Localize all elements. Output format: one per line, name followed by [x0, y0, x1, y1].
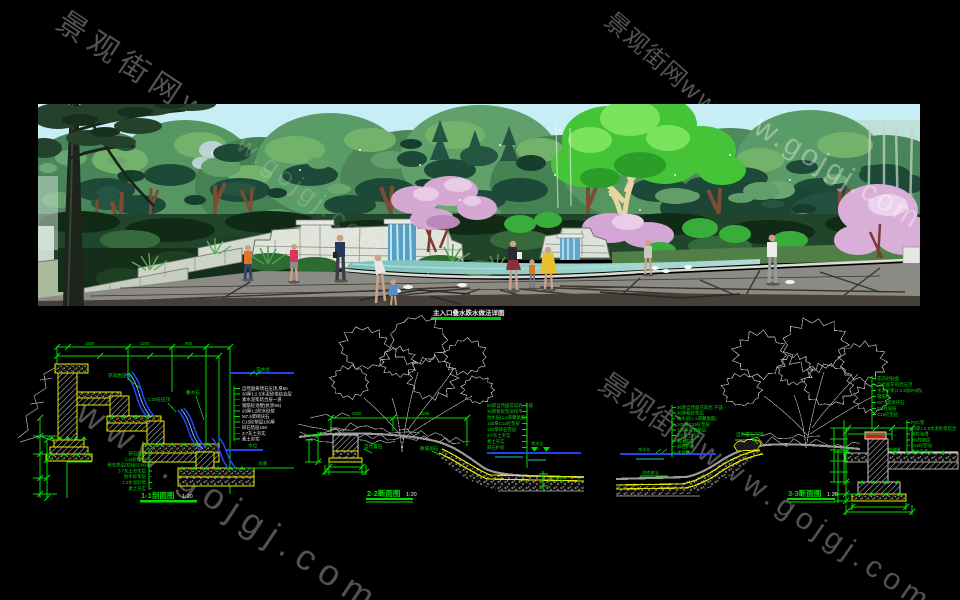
- svg-text:卵石护底: 卵石护底: [487, 444, 505, 451]
- svg-text:池底: 池底: [258, 460, 268, 467]
- svg-text:水泥砂浆(1:2.5加9%防): 水泥砂浆(1:2.5加9%防): [877, 387, 923, 394]
- svg-text:30厚粗砂垫层找平: 30厚粗砂垫层找平: [487, 408, 523, 415]
- svg-text:水位: 水位: [248, 442, 258, 448]
- svg-text:150厚碎石垫层: 150厚碎石垫层: [487, 426, 517, 433]
- svg-text:池底做法: 池底做法: [642, 469, 659, 476]
- svg-text:C15砼垫层: C15砼垫层: [877, 411, 899, 418]
- svg-text:伸缩缝: 伸缩缝: [888, 446, 901, 453]
- svg-text:4500: 4500: [352, 411, 362, 416]
- svg-text:3:7灰土夯实: 3:7灰土夯实: [487, 432, 511, 439]
- svg-text:素土夯实: 素土夯实: [242, 435, 260, 442]
- svg-text:素土夯实: 素土夯实: [911, 448, 929, 455]
- svg-text:100厚C15砼垫层: 100厚C15砼垫层: [487, 420, 521, 427]
- svg-text:常水位: 常水位: [638, 446, 651, 453]
- svg-text:1500: 1500: [85, 341, 95, 346]
- svg-text:2-2断面图: 2-2断面图: [367, 488, 401, 498]
- svg-text:常水位: 常水位: [256, 366, 270, 373]
- svg-text:M7.5浆砌块石: M7.5浆砌块石: [877, 399, 905, 406]
- svg-text:散铺卵石: 散铺卵石: [420, 445, 439, 452]
- svg-text:900: 900: [185, 341, 193, 346]
- svg-text:花岗岩贴面: 花岗岩贴面: [877, 375, 900, 382]
- svg-text:常水位: 常水位: [531, 440, 544, 447]
- svg-text:叠水石: 叠水石: [186, 389, 200, 396]
- svg-text:3-3断面图: 3-3断面图: [788, 488, 822, 498]
- svg-text:自然置石: 自然置石: [364, 443, 383, 450]
- svg-text:素土夯实: 素土夯实: [487, 438, 505, 445]
- svg-text:防水层(1.5厚聚氨酯): 防水层(1.5厚聚氨酯): [487, 414, 527, 421]
- svg-text:自然置石压顶: 自然置石压顶: [736, 431, 764, 438]
- svg-text:主入口叠水跌水做法详图: 主入口叠水跌水做法详图: [433, 308, 505, 317]
- svg-text:1-1剖面图: 1-1剖面图: [141, 490, 175, 500]
- svg-text:自然面花岗岩压顶: 自然面花岗岩压顶: [877, 381, 913, 388]
- svg-text:1:20: 1:20: [182, 494, 193, 500]
- svg-text:素土夯实: 素土夯实: [547, 476, 564, 483]
- svg-text:花岗岩压顶: 花岗岩压顶: [108, 372, 131, 379]
- svg-text:1200: 1200: [140, 341, 150, 346]
- svg-text:水位线: 水位线: [677, 449, 691, 455]
- svg-text:3200: 3200: [420, 411, 430, 416]
- svg-text:3%找坡层: 3%找坡层: [877, 405, 897, 412]
- svg-text:钢筋砼: 钢筋砼: [877, 393, 891, 400]
- svg-text:1:20: 1:20: [827, 492, 838, 498]
- svg-text:1:20: 1:20: [406, 492, 417, 498]
- svg-text:C20砼压顶: C20砼压顶: [148, 396, 171, 403]
